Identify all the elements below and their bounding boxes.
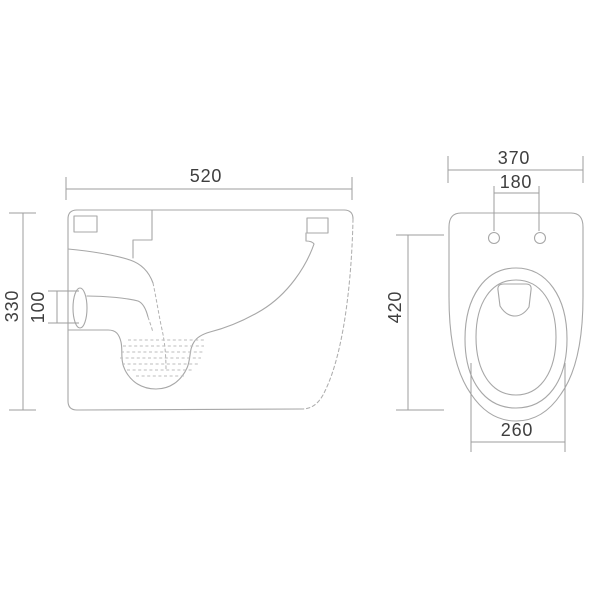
side-mount-boss-right xyxy=(307,218,328,233)
front-seat-outer-ring xyxy=(465,268,567,408)
side-inlet-curve xyxy=(87,296,148,317)
dimension-hole-spacing: 180 xyxy=(494,172,539,231)
side-width-label: 520 xyxy=(190,166,222,186)
technical-drawing-canvas: 520 330 100 370 180 xyxy=(0,0,600,600)
side-height-label: 330 xyxy=(2,290,22,322)
side-top-notch xyxy=(133,210,152,258)
front-mount-hole-left xyxy=(489,233,500,244)
side-trap-outline xyxy=(68,244,314,389)
front-view xyxy=(449,213,583,421)
dimension-side-width: 520 xyxy=(66,166,352,200)
hole-spacing-label: 180 xyxy=(500,172,532,192)
dimension-front-height: 420 xyxy=(385,235,444,410)
side-body-right-edge-hidden xyxy=(303,219,353,409)
front-bowl-inner-ring xyxy=(476,280,556,395)
side-right-step xyxy=(306,233,314,244)
front-drain-outline xyxy=(498,284,531,316)
side-outlet-pipe xyxy=(73,288,87,328)
side-body-outline xyxy=(68,210,353,410)
side-rim-curve xyxy=(68,249,153,283)
side-view xyxy=(68,210,353,410)
water-level-dashes xyxy=(120,340,204,376)
toilet-dimension-diagram: 520 330 100 370 180 xyxy=(0,0,600,600)
front-height-label: 420 xyxy=(385,291,405,323)
front-width-label: 370 xyxy=(498,148,530,168)
side-inlet-curve-hidden xyxy=(148,317,153,333)
side-mount-boss-left xyxy=(74,216,97,232)
outlet-offset-label: 100 xyxy=(28,291,48,323)
front-body-outline xyxy=(449,213,583,421)
bowl-width-label: 260 xyxy=(501,420,533,440)
front-mount-hole-right xyxy=(535,233,546,244)
dimension-outlet-offset: 100 xyxy=(28,291,79,323)
